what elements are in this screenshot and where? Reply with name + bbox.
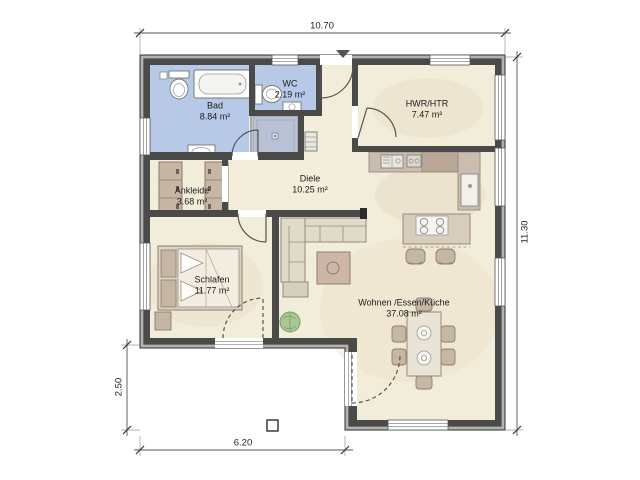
window	[495, 258, 505, 306]
window	[140, 118, 150, 155]
dimension-right: 11.30	[520, 220, 531, 243]
bar-stool-icon	[406, 249, 425, 264]
room-label-bad: Bad 8.84 m²	[200, 101, 231, 122]
coffee-table-icon	[317, 252, 350, 284]
floor-plan-page: Bad 8.84 m² WC 2.19 m² HWR/HTR 7.47 m² A…	[0, 0, 640, 480]
room-label-wohnen: Wohnen /Essen/Küche 37.08 m²	[358, 298, 449, 319]
room-label-hwr: HWR/HTR 7.47 m²	[406, 99, 449, 120]
room-area: 7.47 m²	[406, 109, 449, 120]
dimension-left: 2.50	[114, 378, 125, 397]
window	[495, 75, 505, 140]
dining-chair-icon	[392, 349, 406, 365]
cooktop-icon	[416, 216, 448, 235]
room-area: 2.19 m²	[275, 89, 306, 100]
window	[495, 148, 505, 206]
tall-appliance-icon	[461, 174, 478, 206]
dining-chair-icon	[392, 326, 406, 342]
bar-stool-icon	[436, 249, 455, 264]
room-name: Schlafen	[194, 275, 229, 286]
bathtub-icon	[194, 70, 250, 98]
dining-chair-icon	[441, 349, 455, 365]
room-name: Wohnen /Essen/Küche	[358, 298, 449, 309]
dimension-top: 10.70	[310, 21, 334, 32]
dimension-bottom: 6.20	[234, 438, 253, 449]
room-name: Diele	[292, 174, 328, 185]
shower-icon	[253, 116, 298, 157]
room-label-schlafen: Schlafen 11.77 m²	[194, 275, 229, 296]
room-name: HWR/HTR	[406, 99, 449, 110]
dining-chair-icon	[441, 326, 455, 342]
room-area: 8.84 m²	[200, 111, 231, 122]
room-area: 11.77 m²	[194, 285, 229, 296]
dimension-line-top	[134, 28, 511, 55]
radiator-icon	[305, 132, 317, 151]
window	[272, 55, 298, 65]
dining-chair-icon	[416, 376, 432, 389]
room-label-diele: Diele 10.25 m²	[292, 174, 328, 195]
window	[140, 243, 150, 310]
kitchen-sink-icon	[381, 155, 403, 168]
room-label-ankleide: Ankleide 3.68 m²	[175, 186, 210, 207]
terrace-column-icon	[267, 420, 278, 431]
room-area: 10.25 m²	[292, 184, 328, 195]
room-area: 37.08 m²	[358, 308, 449, 319]
window	[430, 55, 470, 65]
room-name: WC	[275, 79, 306, 90]
dresser-icon	[155, 312, 171, 330]
room-name: Ankleide	[175, 186, 210, 197]
potted-plant-icon	[280, 312, 300, 332]
window	[388, 420, 448, 430]
small-appliance-icon	[407, 155, 421, 167]
ankleide-opening	[222, 166, 228, 202]
room-label-wc: WC 2.19 m²	[275, 79, 306, 100]
room-area: 3.68 m²	[175, 196, 210, 207]
room-name: Bad	[200, 101, 231, 112]
floor-plan-drawing	[0, 0, 640, 480]
